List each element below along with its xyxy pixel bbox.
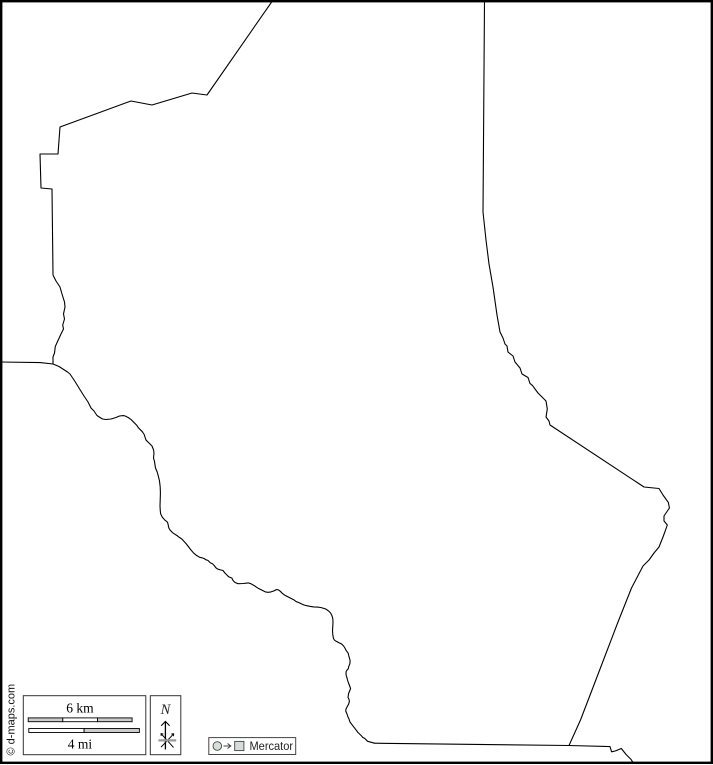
svg-text:N: N [160,702,172,718]
svg-text:Mercator: Mercator [250,739,294,753]
svg-text:4 mi: 4 mi [68,737,93,752]
svg-text:6 km: 6 km [66,701,94,716]
svg-text:© d-maps.com: © d-maps.com [6,684,18,756]
